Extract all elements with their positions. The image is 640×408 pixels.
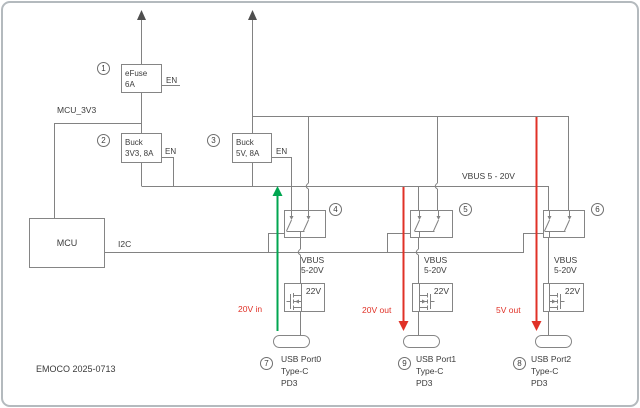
schematic-diagram: eFuse 6A Buck 3V3, 8A Buck 5V, 8A MCU — [0, 0, 640, 408]
flow-arrow-layer — [0, 0, 640, 408]
green-in-arrow-icon — [273, 186, 283, 331]
red-out-arrow-port2-icon — [532, 117, 542, 331]
red-out-arrow-port1-icon — [399, 187, 409, 331]
